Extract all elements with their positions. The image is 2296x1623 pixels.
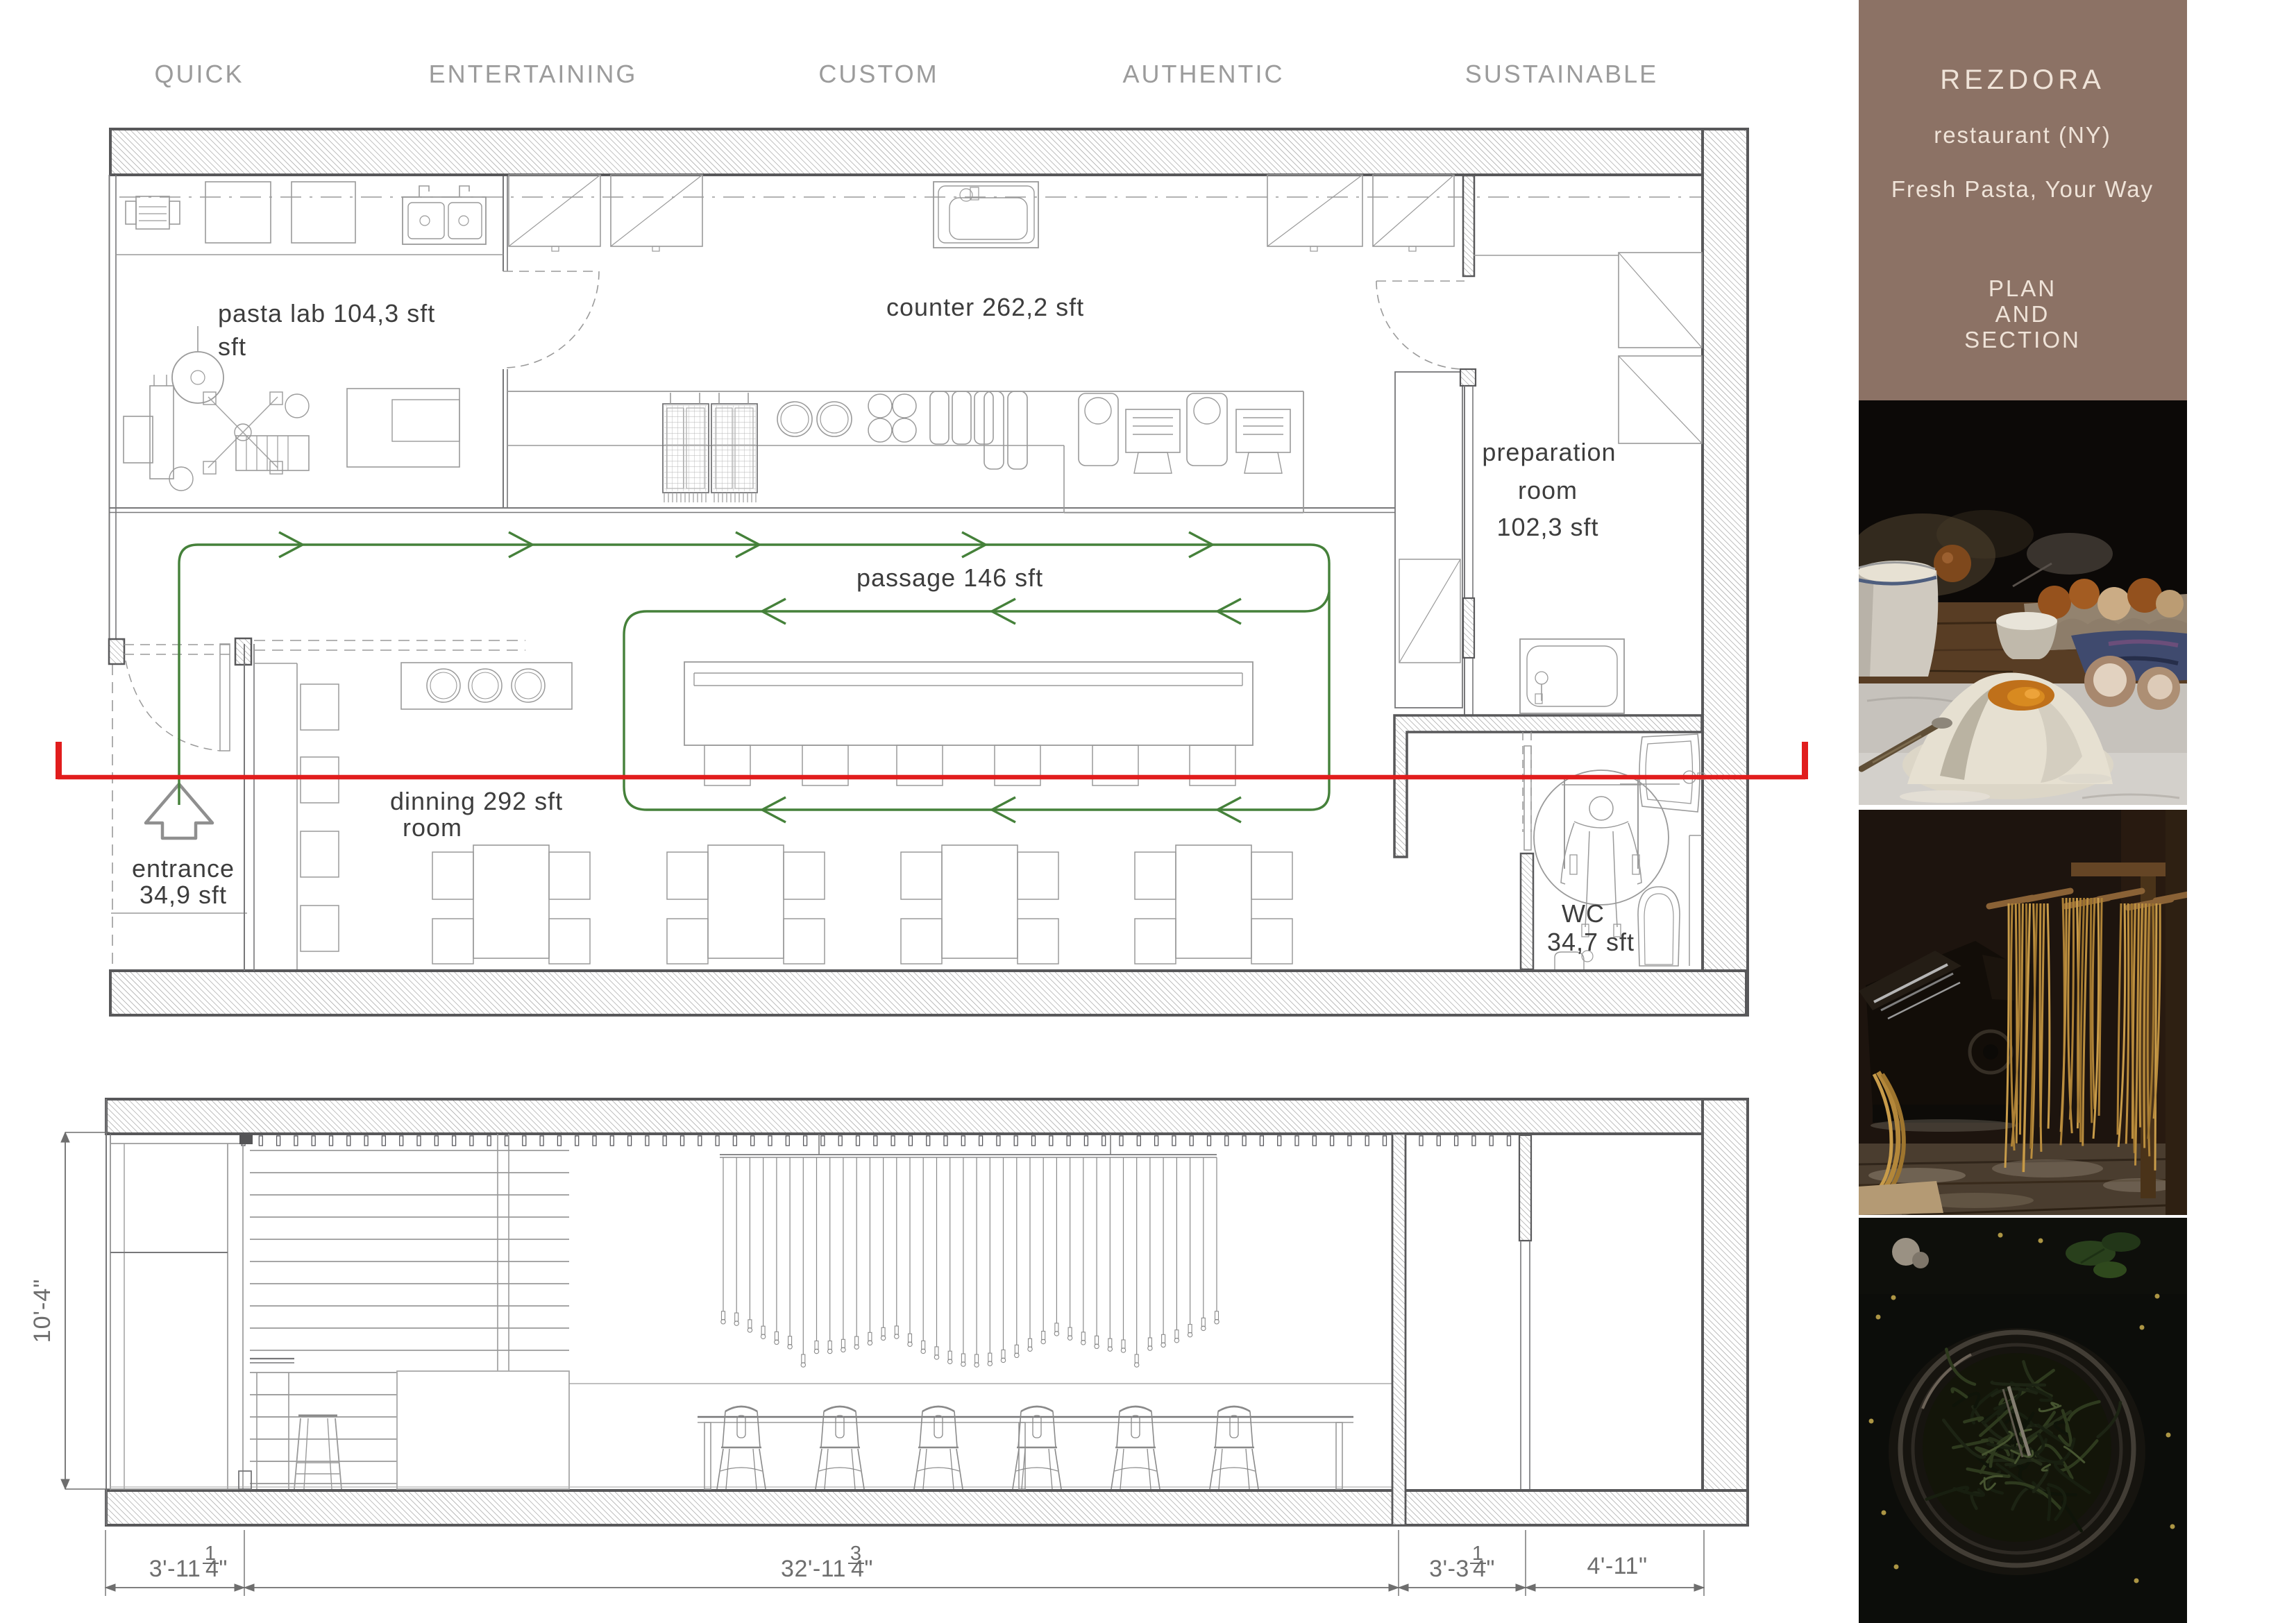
svg-text:3: 3 xyxy=(850,1543,861,1565)
svg-text:ENTERTAINING: ENTERTAINING xyxy=(429,60,638,88)
svg-text:CUSTOM: CUSTOM xyxy=(818,60,938,88)
svg-text:32'-11: 32'-11 xyxy=(781,1556,846,1582)
svg-text:room: room xyxy=(1518,476,1578,504)
svg-text:REZDORA: REZDORA xyxy=(1940,65,2105,95)
svg-text:AUTHENTIC: AUTHENTIC xyxy=(1123,60,1285,88)
svg-text:sft: sft xyxy=(218,332,246,361)
svg-text:WC: WC xyxy=(1562,899,1605,928)
svg-text:102,3 sft: 102,3 sft xyxy=(1496,513,1598,541)
svg-text:pasta lab 104,3 sft: pasta lab 104,3 sft xyxy=(218,299,435,328)
svg-text:QUICK: QUICK xyxy=(154,60,244,88)
svg-text:1: 1 xyxy=(205,1543,216,1565)
svg-text:entrance: entrance xyxy=(132,854,235,883)
svg-text:4'-11": 4'-11" xyxy=(1587,1553,1647,1579)
svg-text:room: room xyxy=(403,813,462,842)
svg-text:passage 146 sft: passage 146 sft xyxy=(856,563,1043,592)
svg-text:dinning 292 sft: dinning 292 sft xyxy=(390,787,563,815)
svg-text:SECTION: SECTION xyxy=(1964,327,2081,352)
svg-text:SUSTAINABLE: SUSTAINABLE xyxy=(1465,60,1658,88)
svg-text:AND: AND xyxy=(1995,301,2050,327)
svg-text:3'-3: 3'-3 xyxy=(1429,1556,1469,1582)
svg-text:preparation: preparation xyxy=(1482,438,1616,466)
svg-text:restaurant (NY): restaurant (NY) xyxy=(1934,122,2111,148)
svg-text:counter 262,2 sft: counter 262,2 sft xyxy=(886,293,1084,321)
svg-text:34,7 sft: 34,7 sft xyxy=(1547,928,1635,956)
svg-text:34,9 sft: 34,9 sft xyxy=(140,881,227,909)
svg-text:3'-11: 3'-11 xyxy=(149,1556,201,1582)
svg-text:10'-4": 10'-4" xyxy=(29,1279,56,1343)
svg-text:PLAN: PLAN xyxy=(1989,275,2057,301)
svg-text:Fresh Pasta, Your Way: Fresh Pasta, Your Way xyxy=(1891,176,2154,202)
svg-text:1: 1 xyxy=(1472,1543,1483,1565)
